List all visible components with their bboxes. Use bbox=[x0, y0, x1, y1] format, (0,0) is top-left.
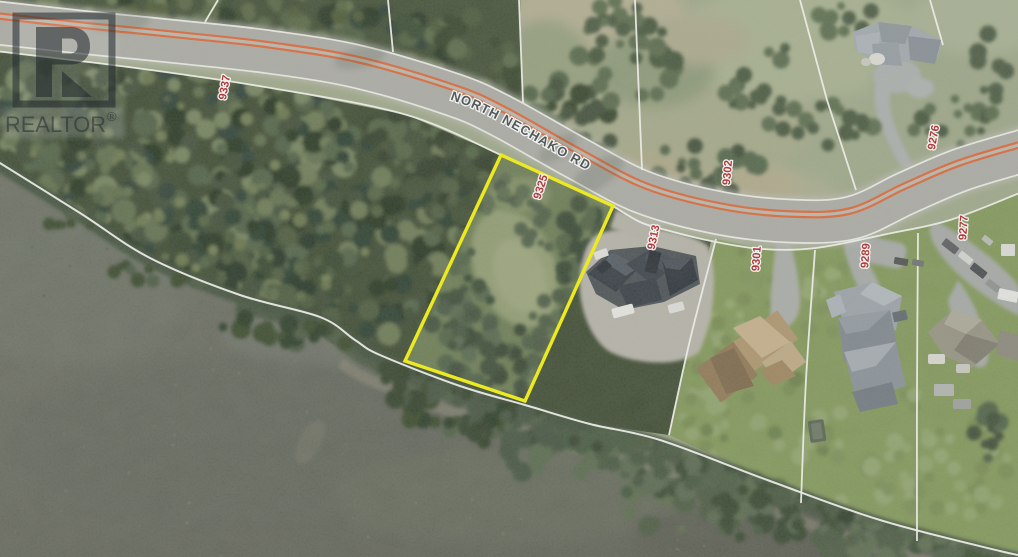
svg-text:REALTOR: REALTOR bbox=[5, 112, 106, 137]
svg-text:®: ® bbox=[107, 109, 117, 124]
